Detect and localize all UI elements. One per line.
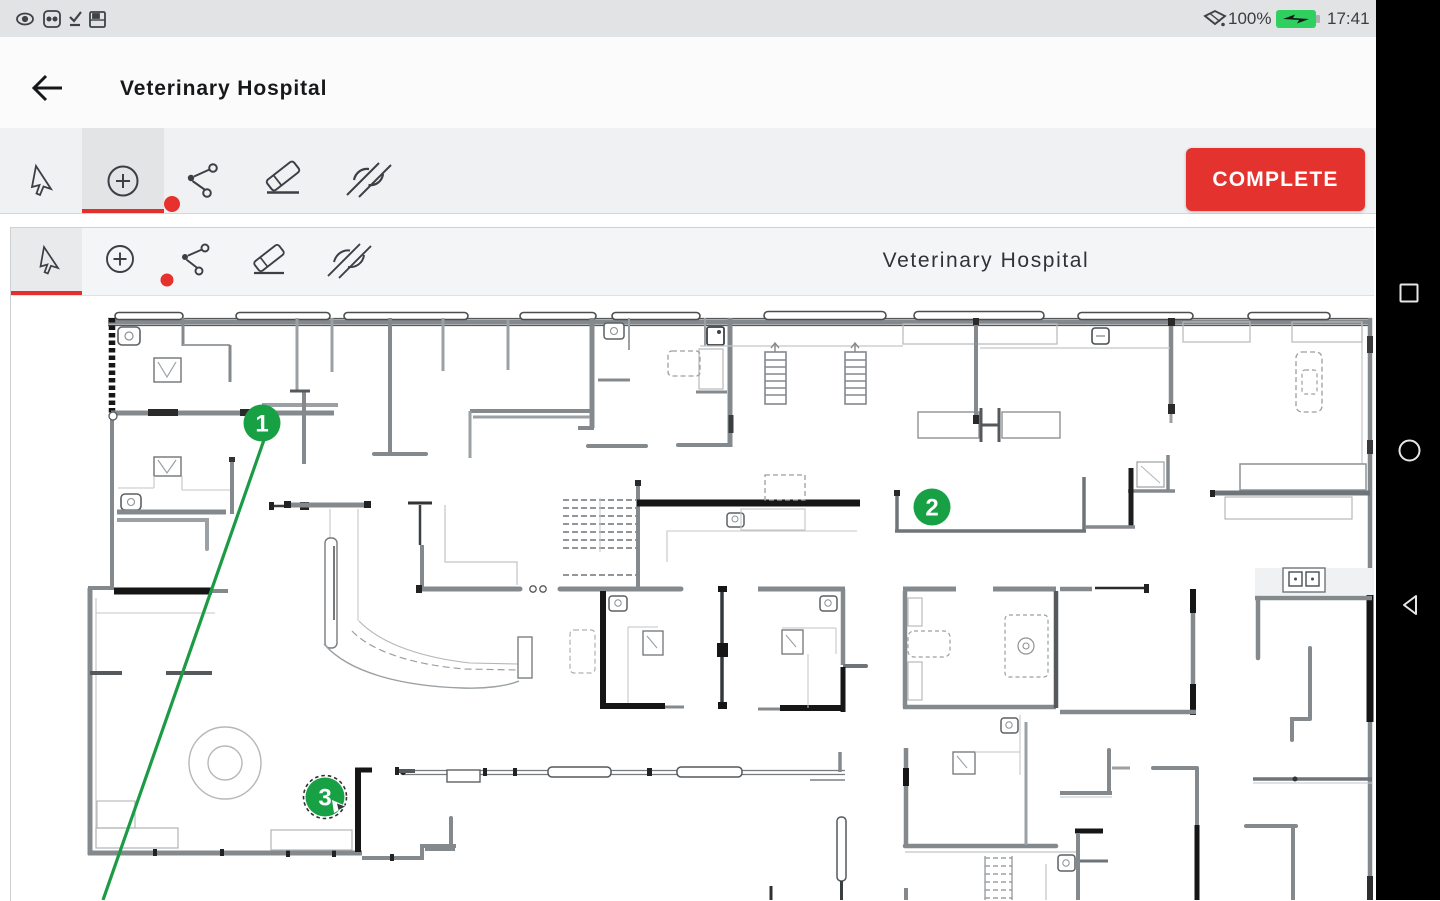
svg-text:1: 1: [255, 411, 268, 438]
svg-text:3: 3: [318, 785, 331, 812]
svg-text:2: 2: [925, 495, 938, 522]
